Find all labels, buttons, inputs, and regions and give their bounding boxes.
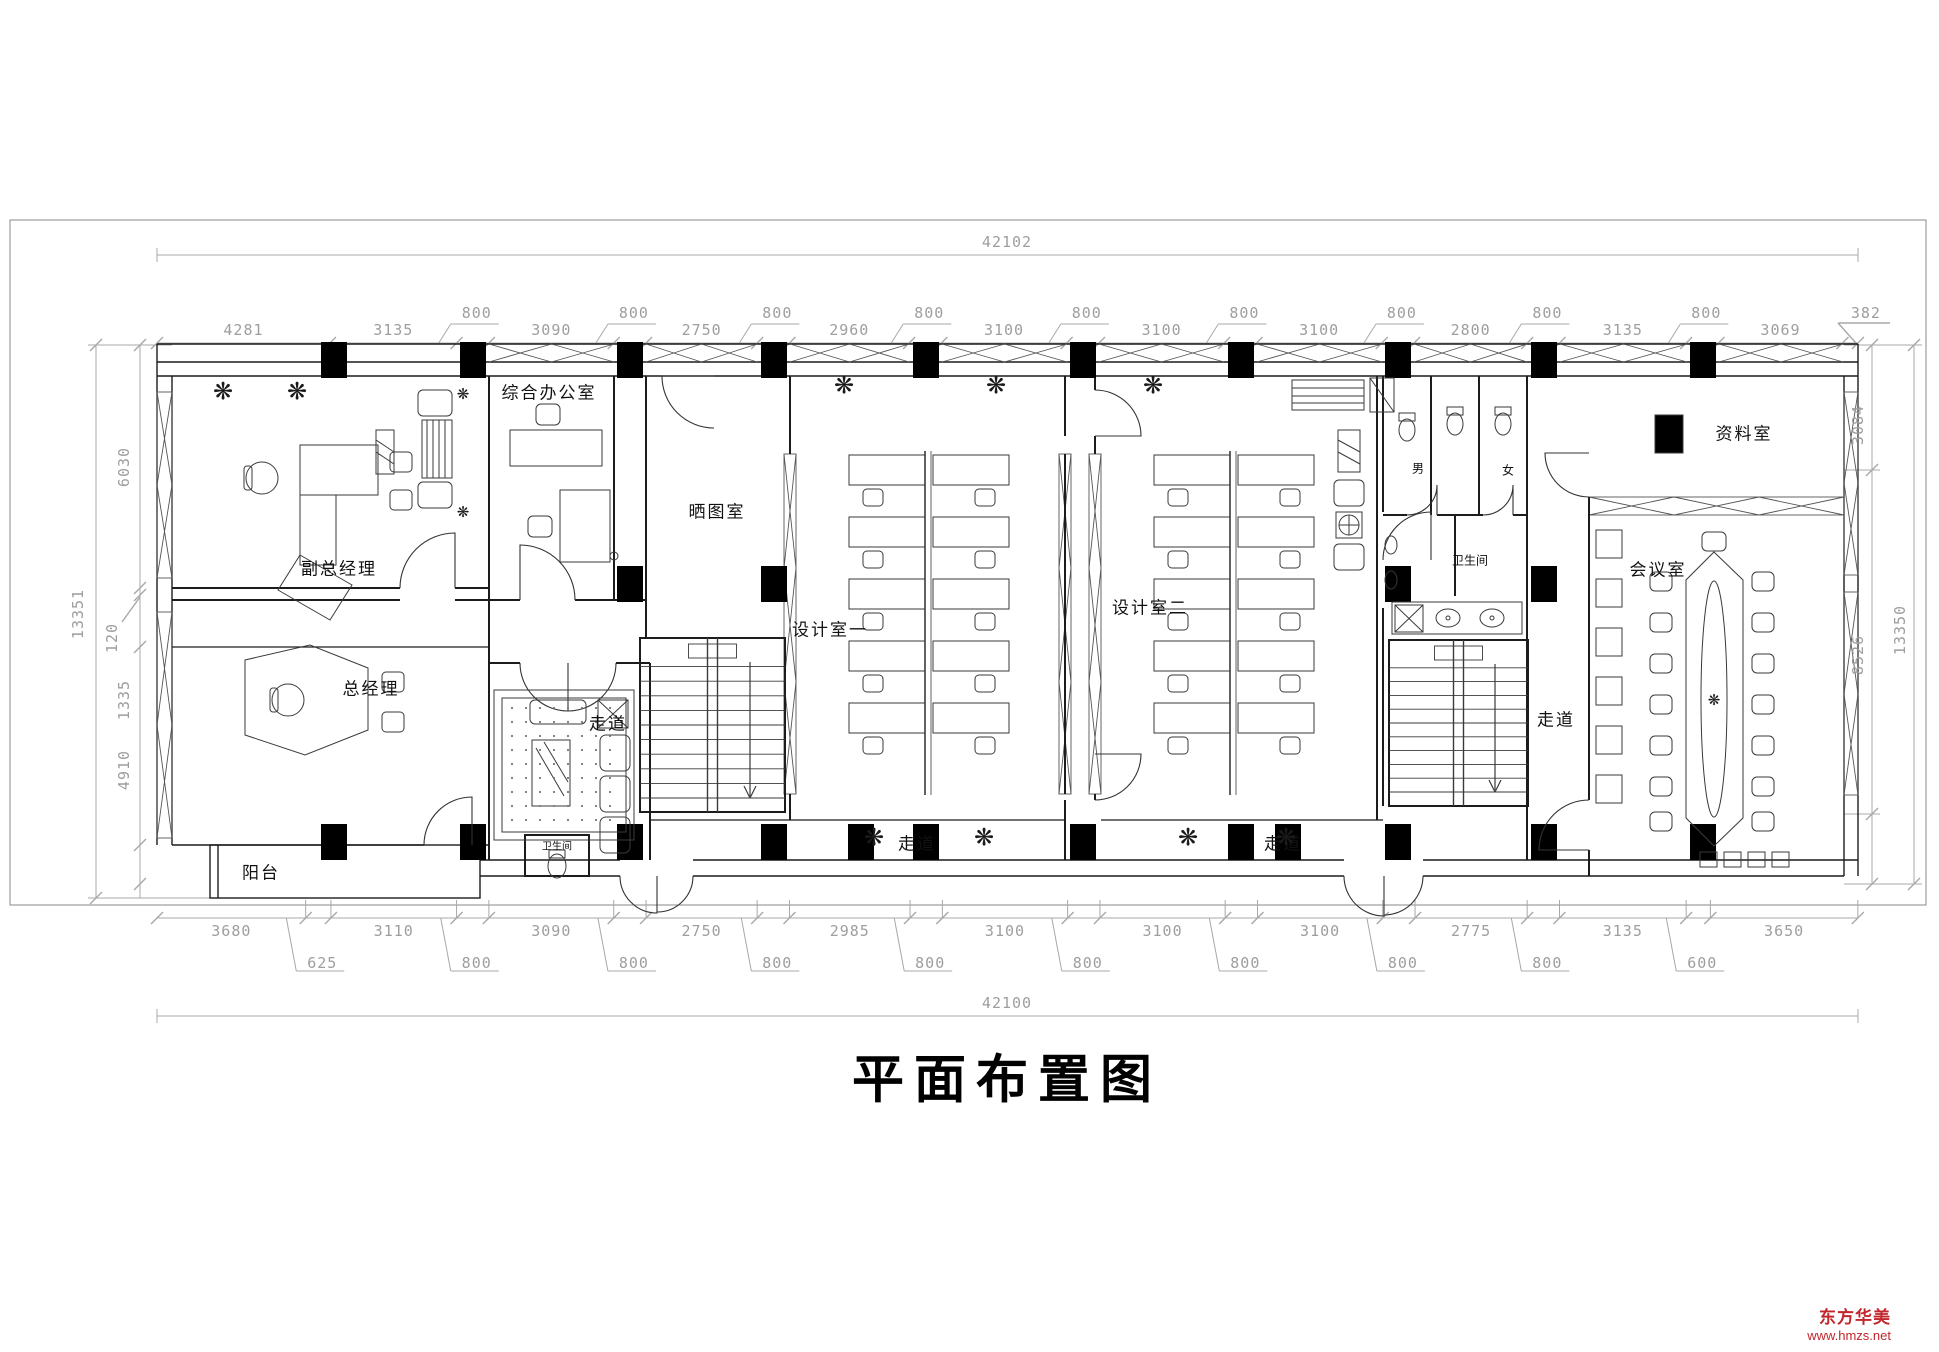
dim-label: 3100 [985, 922, 1025, 940]
dim-left-1335: 1335 [115, 680, 133, 720]
dim-label: 800 [762, 304, 792, 322]
dim-label: 382 [1851, 304, 1881, 322]
plant-icon: ❋ [1178, 824, 1198, 853]
dim-left-120: 120 [103, 623, 121, 653]
dim-label: 3100 [1142, 922, 1182, 940]
room-label-design2: 设计室二 [1112, 594, 1188, 619]
dim-label: 3110 [374, 922, 414, 940]
room-label-toilet-small: 卫生间 [542, 838, 572, 853]
dim-right-outer: 13350 [1891, 605, 1909, 655]
structural-columns [321, 342, 1716, 860]
dim-label: 800 [462, 954, 492, 972]
staircase-right [1389, 640, 1528, 806]
plant-icon: ❋ [213, 378, 233, 407]
room-label-blueprint: 晒图室 [689, 498, 746, 523]
dim-right-8526: 8526 [1849, 635, 1867, 675]
dim-label: 800 [914, 304, 944, 322]
watermark: 东方华美 www.hmzs.net [1807, 1307, 1891, 1345]
dim-label: 800 [1387, 304, 1417, 322]
room-label-toilet: 卫生间 [1452, 552, 1488, 569]
dim-label: 3069 [1760, 321, 1800, 339]
plant-icon: ❋ [457, 503, 470, 521]
plant-icon: ❋ [1143, 372, 1163, 401]
room-label-balcony: 阳台 [242, 859, 280, 884]
dim-total-top: 42102 [982, 233, 1032, 251]
dim-label: 800 [619, 304, 649, 322]
room-label-corridor-bottom1: 走道 [898, 830, 936, 855]
room-label-archive: 资料室 [1716, 420, 1773, 445]
plant-icon: ❋ [974, 824, 994, 853]
room-label-corridor-right: 走道 [1537, 706, 1575, 731]
dim-label: 4281 [223, 321, 263, 339]
dim-label: 3090 [531, 321, 571, 339]
dim-left-outer: 13351 [69, 589, 87, 639]
floor-plan-drawing [0, 0, 1939, 1352]
room-label-design1: 设计室一 [792, 616, 868, 641]
dim-label: 3135 [373, 321, 413, 339]
plant-icon: ❋ [1276, 824, 1296, 853]
dim-label: 3100 [984, 321, 1024, 339]
dim-label: 800 [1230, 954, 1260, 972]
dim-label: 800 [762, 954, 792, 972]
dim-label: 3090 [531, 922, 571, 940]
dim-label: 800 [1532, 954, 1562, 972]
dim-label: 3100 [1142, 321, 1182, 339]
dim-label: 2750 [682, 321, 722, 339]
interior-walls [172, 376, 1589, 876]
plant-icon: ❋ [834, 372, 854, 401]
dim-label: 3135 [1603, 922, 1643, 940]
dim-label: 2985 [830, 922, 870, 940]
dim-left-4910: 4910 [115, 750, 133, 790]
dim-label: 2800 [1451, 321, 1491, 339]
room-label-corridor-left: 走道 [589, 710, 627, 735]
watermark-url: www.hmzs.net [1807, 1328, 1891, 1344]
room-label-gm: 总经理 [343, 675, 400, 700]
plant-icon: ❋ [864, 824, 884, 853]
dim-label: 3100 [1300, 922, 1340, 940]
dim-right-3084: 3084 [1849, 405, 1867, 445]
dim-label: 600 [1687, 954, 1717, 972]
dim-label: 2775 [1451, 922, 1491, 940]
room-label-female: 女 [1502, 462, 1514, 479]
dim-total-bottom: 42100 [982, 994, 1032, 1012]
room-label-deputy-gm: 副总经理 [301, 555, 377, 580]
plant-icon: ❋ [986, 372, 1006, 401]
side-dim-ticks [90, 323, 1920, 904]
overall-dim-lines [88, 248, 1922, 1023]
dim-label: 3680 [211, 922, 251, 940]
room-label-meeting: 会议室 [1630, 556, 1687, 581]
exterior-walls [157, 344, 1858, 898]
dim-label: 3100 [1299, 321, 1339, 339]
dim-label: 800 [1388, 954, 1418, 972]
room-label-general-office: 综合办公室 [502, 379, 597, 404]
dim-label: 800 [1073, 954, 1103, 972]
window-glazing [157, 344, 1858, 838]
plant-icon: ❋ [457, 385, 470, 403]
dim-label: 800 [1229, 304, 1259, 322]
dim-label: 2960 [829, 321, 869, 339]
dim-label: 800 [915, 954, 945, 972]
room-label-male: 男 [1412, 460, 1424, 477]
watermark-name: 东方华美 [1807, 1307, 1891, 1328]
plant-icon: ❋ [287, 378, 307, 407]
dim-label: 3650 [1764, 922, 1804, 940]
dim-label: 800 [1691, 304, 1721, 322]
staircase-left [640, 638, 785, 812]
dim-label: 800 [462, 304, 492, 322]
dim-label: 2750 [682, 922, 722, 940]
dim-label: 800 [1072, 304, 1102, 322]
dim-label: 625 [307, 954, 337, 972]
dim-left-6030: 6030 [115, 447, 133, 487]
dim-label: 3135 [1603, 321, 1643, 339]
drawing-title: 平面布置图 [852, 1038, 1162, 1113]
dim-label: 800 [1532, 304, 1562, 322]
plant-icon: ❋ [1708, 691, 1721, 709]
dim-label: 800 [619, 954, 649, 972]
floor-plan-page: 42102 42100 13351 6030 120 1335 4910 308… [0, 0, 1939, 1352]
